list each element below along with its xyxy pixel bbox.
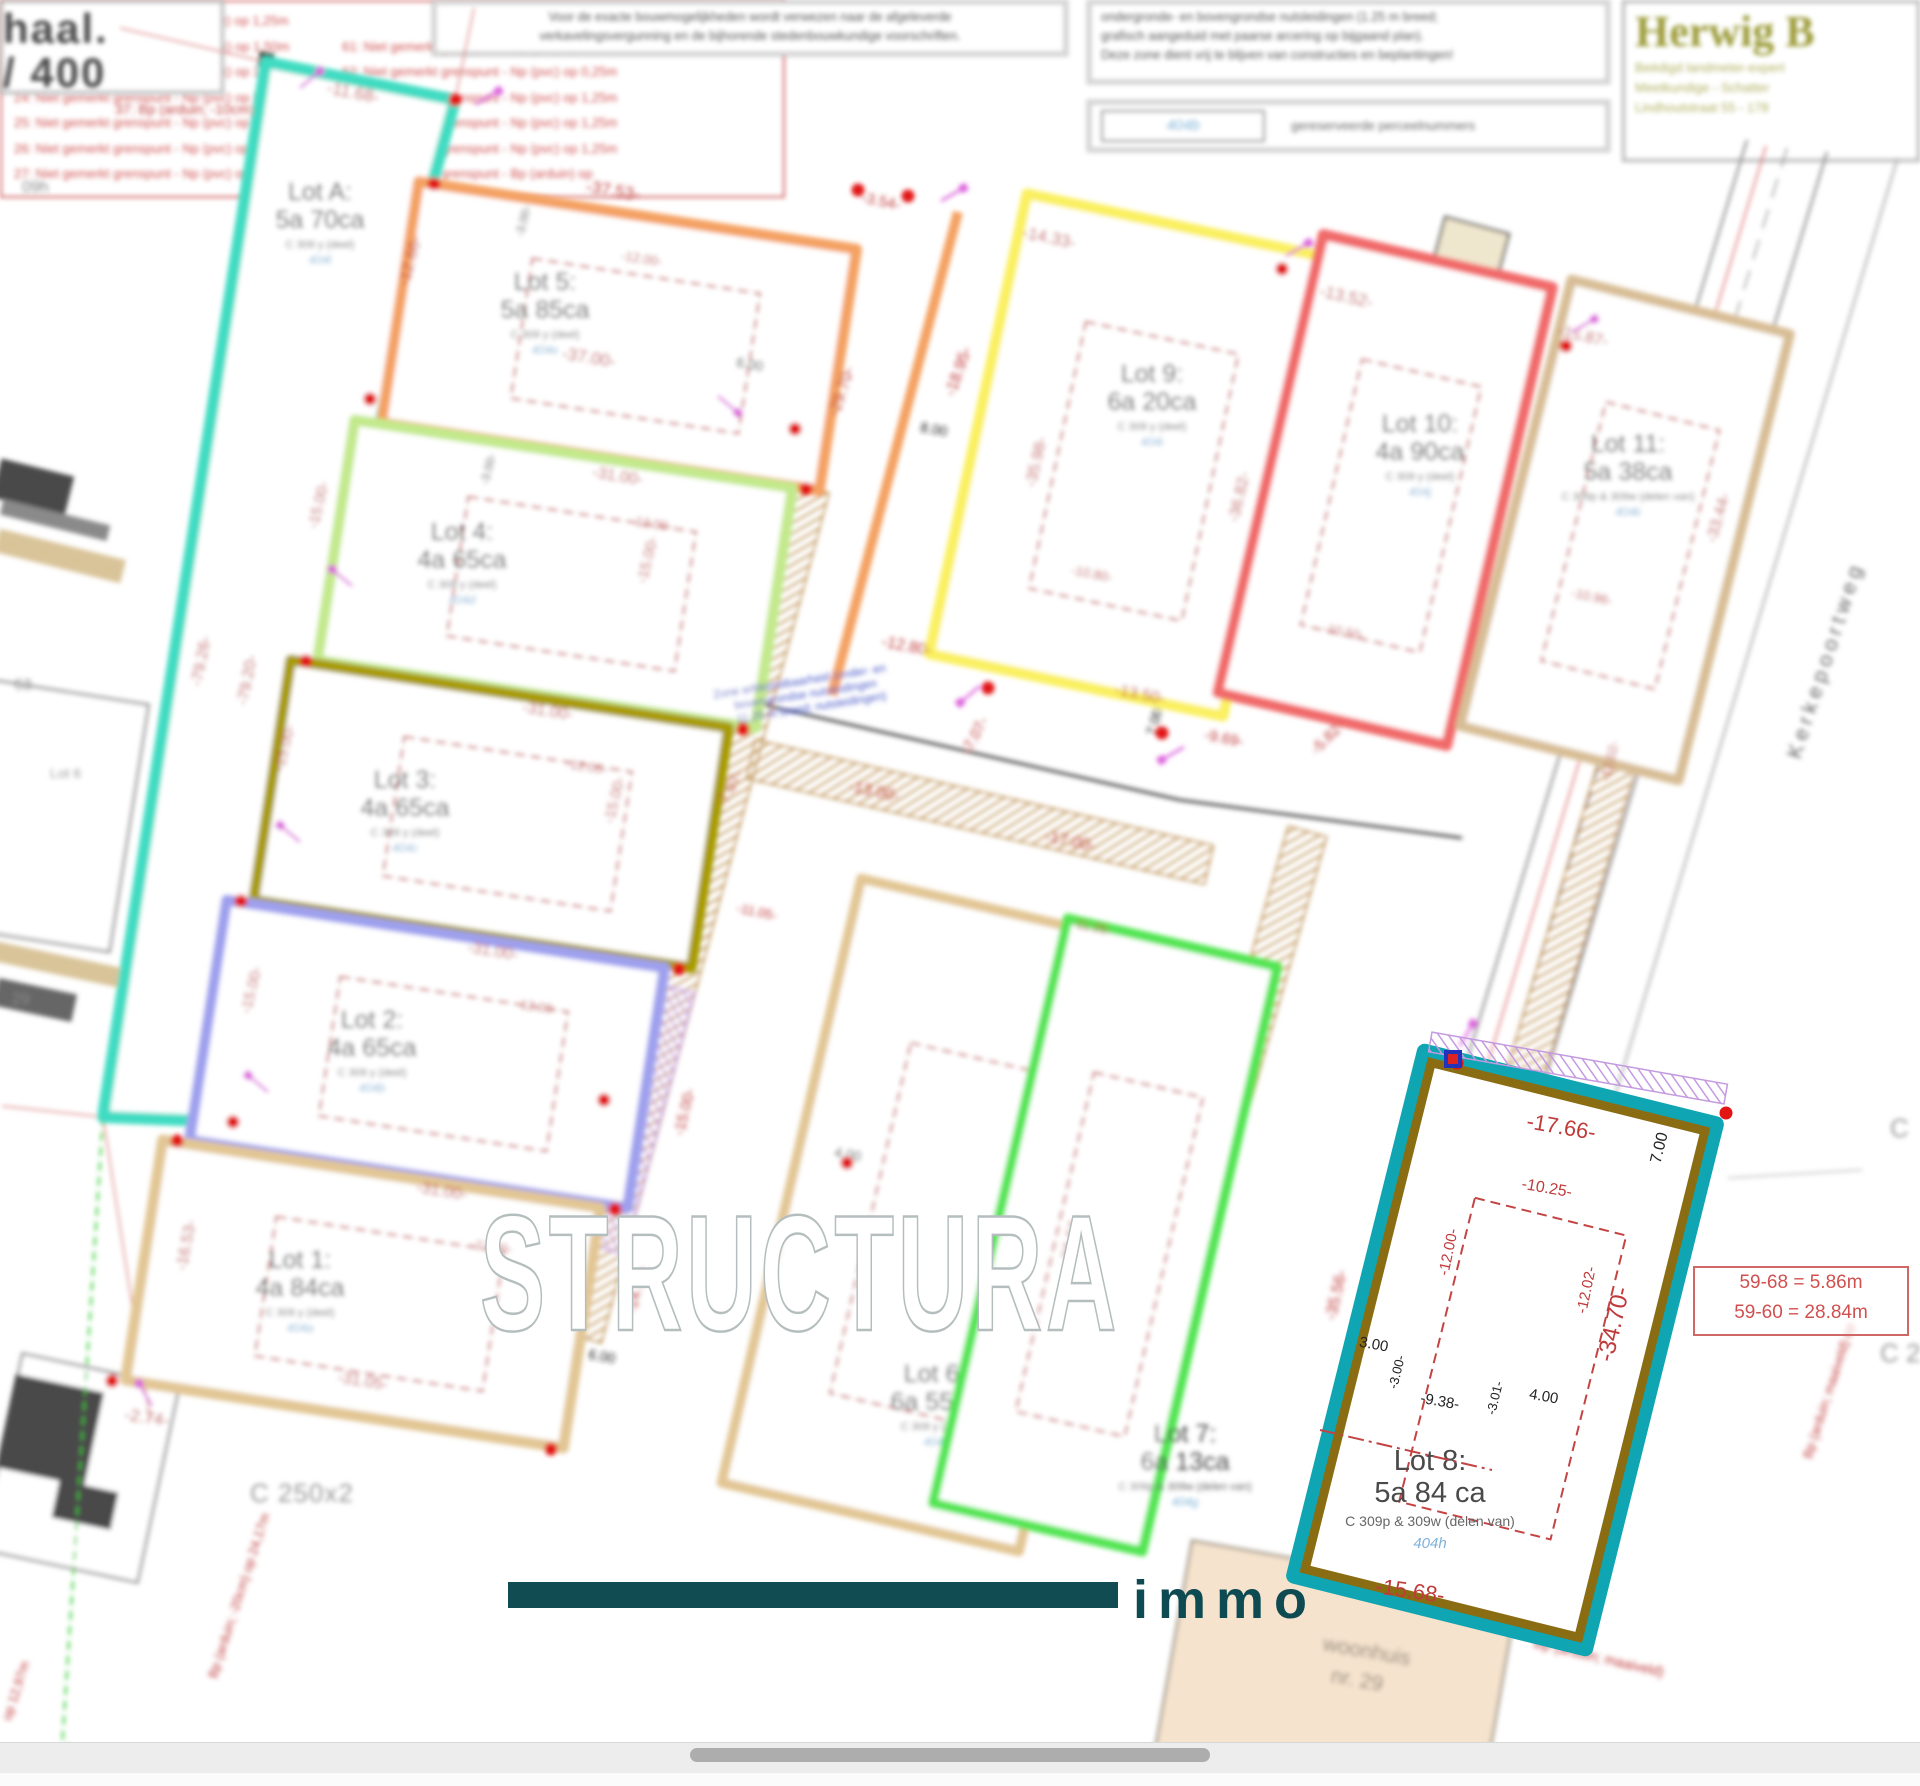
map-label: -11.05- [736, 900, 778, 923]
boundary-point-dot [364, 393, 377, 406]
cadastral-plan-canvas: Lot A:5a 70caC 309 y (deel)404lLot 5:5a … [0, 0, 1920, 1786]
map-label: 404l [309, 253, 332, 267]
map-label: C 309 y (deel) [1117, 421, 1186, 433]
blurred-plan-layer: Lot A:5a 70caC 309 y (deel)404lLot 5:5a … [0, 8, 1920, 1786]
map-label: Lot 3: [374, 766, 437, 794]
measure-line: 59-60 = 28.84m [1695, 1298, 1907, 1328]
boundary-point-dot [1560, 340, 1573, 353]
point-marker-flag [1303, 238, 1314, 249]
map-label: 404k [1615, 505, 1642, 519]
map-label: Lot 9: [1121, 360, 1184, 388]
boundary-point-dot [235, 895, 248, 908]
map-label: -37.53- [585, 177, 641, 204]
map-label: 09h [22, 179, 49, 196]
plan-viewer: haal. / 400 Voor de exacte bouwmogelijkh… [0, 0, 1920, 1786]
boundary-point-dot [428, 178, 441, 191]
map-label: C 309 y (deel) [427, 579, 496, 591]
map-label: C [1890, 1113, 1909, 1143]
map-label: C 309 y (deel) [337, 1067, 406, 1079]
scrollbar-thumb[interactable] [690, 1748, 1210, 1762]
plan-line [1180, 800, 1462, 838]
map-label: -35.56- [1323, 1268, 1351, 1321]
map-label: -7.07- [958, 715, 991, 758]
map-label: 404h [1413, 1535, 1446, 1552]
measure-box: 59-68 = 5.86m 59-60 = 28.84m [1693, 1266, 1909, 1336]
plan-line [1728, 1170, 1862, 1178]
map-label: Lot 10: [1382, 410, 1458, 438]
map-label: 4a 84ca [256, 1274, 345, 1302]
map-label: 404i [1141, 435, 1164, 449]
map-label: Lot A: [288, 178, 352, 206]
scrollbar-gutter [0, 1773, 1920, 1786]
plan-line [2, 1106, 103, 1117]
map-label: 4a 65ca [361, 794, 450, 822]
boundary-point-dot [300, 655, 313, 668]
survey-marker-red [1448, 1054, 1458, 1064]
map-label: C 309 y (deel) [285, 239, 354, 251]
map-label: Lot 7: [1154, 1420, 1217, 1448]
map-label: 5a 70ca [276, 206, 365, 234]
boundary-point-dot [1276, 263, 1289, 276]
boundary-point-dot [106, 1375, 119, 1388]
boundary-point-dot [1156, 727, 1169, 740]
map-label: -18.95- [942, 345, 975, 398]
map-label: C 309p & 309w (delen van) [1118, 1481, 1251, 1493]
map-label: Lot 5: [514, 268, 577, 296]
map-label: 5a 85ca [501, 296, 590, 324]
map-label: C 309 y (deel) [510, 329, 579, 341]
boundary-point-dot [800, 483, 813, 496]
map-label: 63 [14, 677, 32, 694]
plan-line [455, 8, 474, 100]
boundary-point-dot [841, 1157, 854, 1170]
map-label: 404a [287, 1321, 314, 1335]
boundary-point-dot [171, 1135, 184, 1148]
map-label: 4a 90ca [1376, 438, 1465, 466]
logo-underline-bar [508, 1582, 1118, 1608]
map-label: C 309p & 309w (delen van) [1561, 491, 1694, 503]
point-marker-flag [1156, 755, 1167, 766]
map-label: C 309p & 309w (delen van) [1345, 1513, 1515, 1529]
map-label: Lot 2: [341, 1006, 404, 1034]
plan-line [120, 28, 266, 62]
map-label: C 250x2 [250, 1478, 354, 1508]
boundary-point-dot [598, 1094, 611, 1107]
boundary-point-dot [789, 423, 802, 436]
boundary-point-dot [902, 190, 915, 203]
boundary-point-dot [545, 1443, 558, 1456]
logo-immo-text: immo [1133, 1570, 1317, 1630]
map-label: Bp (arduin; maaiveld) op [1800, 1321, 1858, 1460]
map-label: 5a 84 ca [1374, 1477, 1486, 1509]
boundary-point-dot [1720, 1107, 1733, 1120]
map-label: -15.00- [671, 1087, 699, 1137]
measure-line: 59-68 = 5.86m [1695, 1268, 1907, 1298]
map-label: 404e [532, 343, 559, 357]
map-label: 6a 13ca [1141, 1448, 1230, 1476]
map-label: 404g [1172, 1495, 1199, 1509]
map-label: C 309 y (deel) [265, 1307, 334, 1319]
hatched-zone [747, 740, 1214, 885]
map-label: 404d [449, 593, 476, 607]
map-label: -12.80- [880, 633, 933, 659]
neighbour-structure [0, 678, 149, 952]
scrollbar-track[interactable] [0, 1742, 1920, 1786]
map-label: Lot 6 [50, 765, 81, 781]
map-label: 37: Bp (arduin; -10cm) [115, 101, 254, 117]
map-label: 29 [12, 991, 30, 1008]
map-label: 404c [392, 841, 418, 855]
map-label: Lot 1: [269, 1246, 332, 1274]
boundary-point-dot [449, 94, 462, 107]
boundary-point-dot [982, 682, 995, 695]
map-label: 4a 65ca [418, 546, 507, 574]
map-label: 404j [1409, 485, 1432, 499]
map-label: 4a 65ca [328, 1034, 417, 1062]
map-label: Lot 4: [431, 518, 494, 546]
map-label: Kerkepoortweg [1783, 558, 1869, 761]
map-label: Bp (arduin; -20cm) op 24,17m [205, 1511, 273, 1680]
map-label: 404b [359, 1081, 386, 1095]
boundary-point-dot [673, 963, 686, 976]
boundary-point-dot [852, 184, 865, 197]
watermark-structura: STRUCTURA [480, 1181, 1120, 1365]
map-label: 8.00 [919, 419, 949, 440]
boundary-point-dot [227, 1116, 240, 1129]
map-label: op 12,97m [0, 1659, 32, 1722]
point-marker-flag [493, 86, 504, 97]
boundary-point-dot [737, 723, 750, 736]
map-label: 5a 38ca [1584, 458, 1673, 486]
map-label: C 2 [1880, 1338, 1920, 1368]
map-label: Lot 11: [1591, 430, 1666, 458]
map-label: 6a 20ca [1108, 388, 1197, 416]
map-label: C 309 y (deel) [1385, 471, 1454, 483]
point-marker-flag [958, 183, 969, 194]
map-label: -3.54- [860, 189, 902, 214]
map-label: -9.69- [1203, 727, 1245, 751]
map-label: C 309 y (deel) [370, 827, 439, 839]
